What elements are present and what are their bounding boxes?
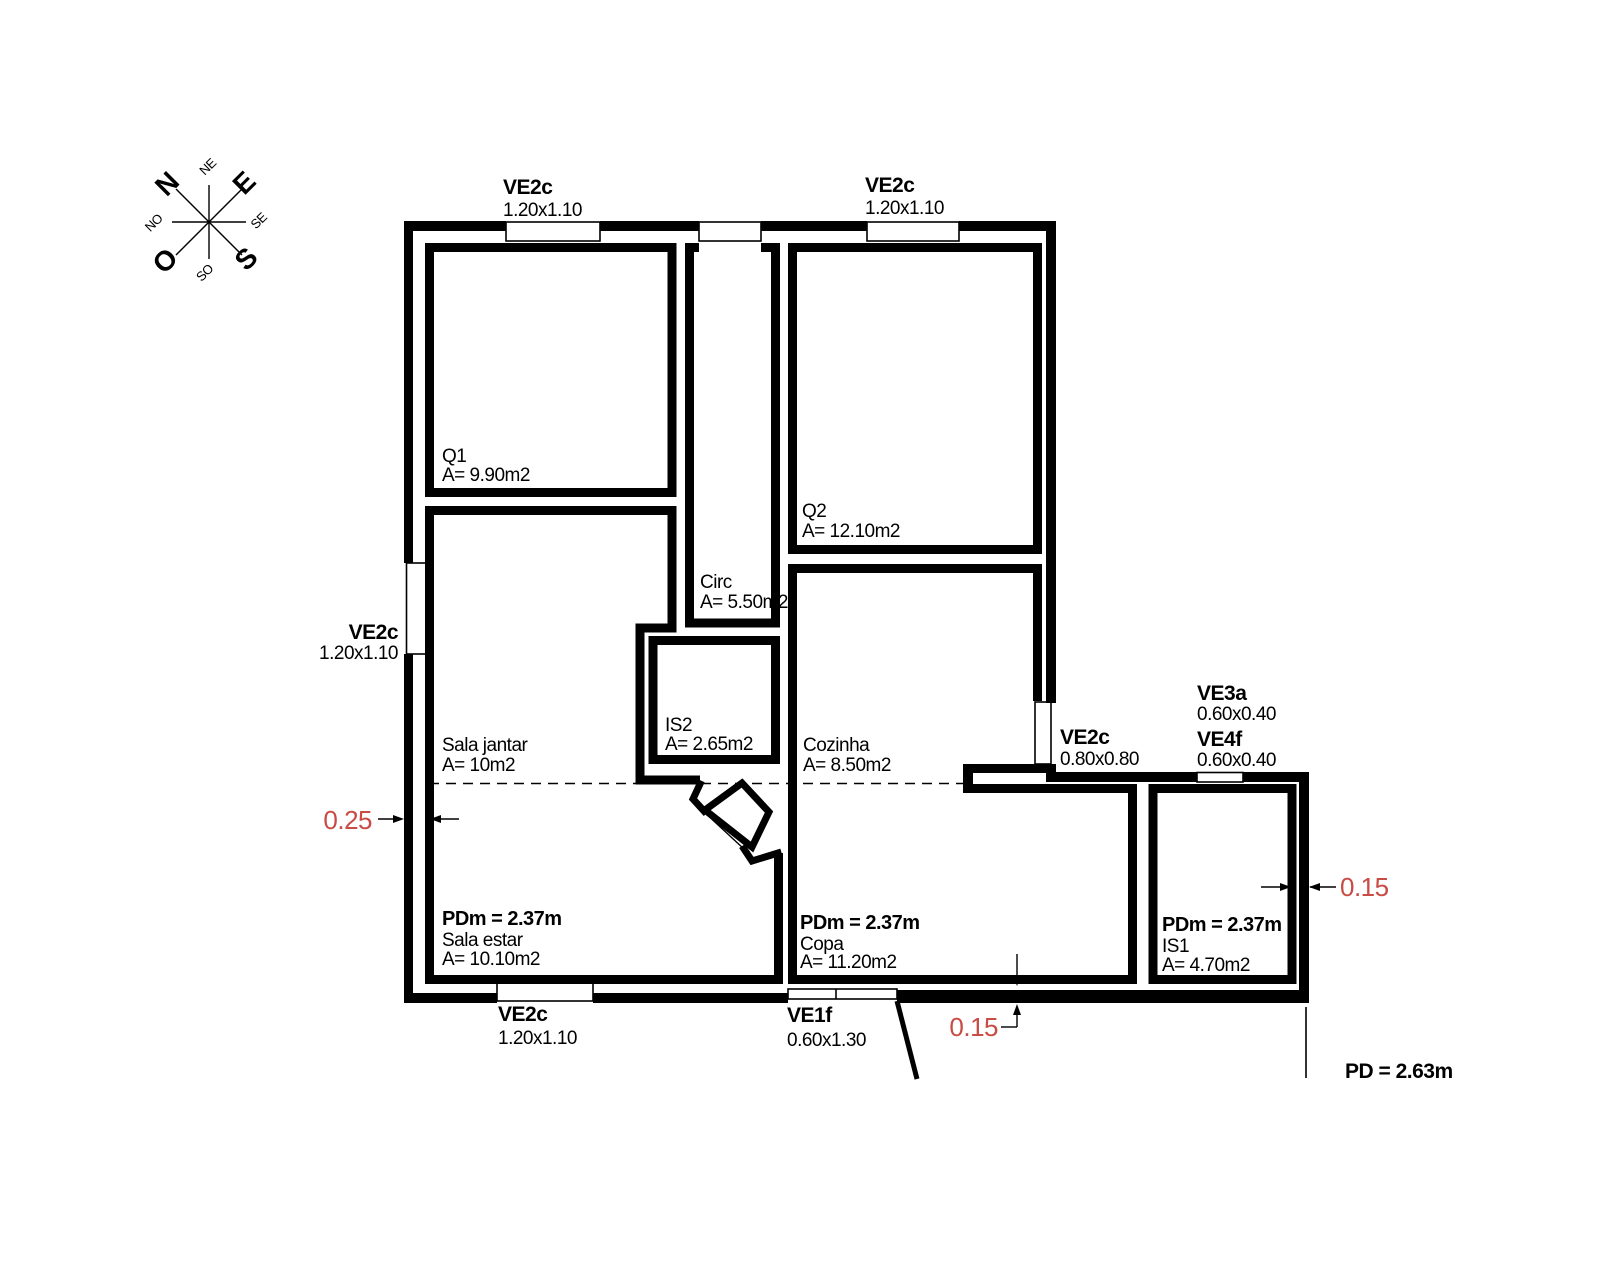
window-openings <box>407 222 1244 1001</box>
door-leaf <box>705 783 769 847</box>
window-bottom <box>497 982 593 1001</box>
label-left-window-code: VE2c <box>349 621 399 644</box>
compass-label-n: N <box>149 166 185 202</box>
label-sala-jantar-area: A= 10m2 <box>442 755 515 776</box>
label-bottom-window-code: VE2c <box>498 1003 548 1026</box>
dimension-left-arrow-outer <box>393 815 404 823</box>
floor-plan-drawing: N E S O NE SE SO NO <box>0 0 1600 1280</box>
wall-interior-band <box>968 764 1046 773</box>
label-q1-name: Q1 <box>442 446 466 467</box>
wall-left-lower <box>404 654 413 1003</box>
label-circ-name: Circ <box>700 572 732 593</box>
label-ve1f-size: 0.60x1.30 <box>787 1030 866 1051</box>
label-sala-estar-name: Sala estar <box>442 930 524 951</box>
label-q2-name: Q2 <box>802 501 826 522</box>
compass-label-e: E <box>227 166 262 201</box>
label-is1-area: A= 4.70m2 <box>1162 955 1250 976</box>
wall-extension-right <box>1299 772 1309 1003</box>
label-copa-ceiling: PDm = 2.37m <box>800 912 920 934</box>
compass-label-ne: NE <box>196 155 219 178</box>
label-copa-area: A= 11.20m2 <box>800 952 897 973</box>
rear-door-leaf <box>897 1001 917 1079</box>
label-cozinha-name: Cozinha <box>803 735 870 756</box>
label-top-window-1-code: VE2c <box>503 176 553 199</box>
floor-plan-page: N E S O NE SE SO NO <box>0 0 1600 1280</box>
label-bottom-window-size: 1.20x1.10 <box>498 1028 577 1049</box>
exterior-walls <box>404 221 1309 1003</box>
label-is2-name: IS2 <box>665 715 692 736</box>
compass-label-no: NO <box>142 211 166 235</box>
label-right-window-size: 0.80x0.80 <box>1060 749 1139 770</box>
label-top-window-2-code: VE2c <box>865 174 915 197</box>
room-outlines <box>430 248 1293 980</box>
interior-door <box>693 783 778 861</box>
label-right-window-code: VE2c <box>1060 726 1110 749</box>
window-left <box>407 563 428 654</box>
ceiling-height-note: PD = 2.63m <box>1345 1060 1453 1083</box>
label-sala-estar-ceiling: PDm = 2.37m <box>442 908 562 930</box>
compass-rose: N E S O NE SE SO NO <box>142 155 271 285</box>
label-top-window-1-size: 1.20x1.10 <box>503 200 582 221</box>
label-q2-area: A= 12.10m2 <box>802 521 900 542</box>
wall-top-segment-1 <box>404 221 506 231</box>
window-top-2 <box>867 222 959 241</box>
door-jamb-lower <box>744 849 778 861</box>
label-sala-estar-area: A= 10.10m2 <box>442 949 540 970</box>
label-q1-area: A= 9.90m2 <box>442 465 530 486</box>
room-outline-circ <box>690 248 776 624</box>
wall-left-upper <box>404 221 413 563</box>
label-left-window-size: 1.20x1.10 <box>319 643 398 664</box>
window-ve4f <box>1197 773 1243 783</box>
wall-bottom-segment-1 <box>404 993 497 1003</box>
dimension-bottom-value: 0.15 <box>949 1012 998 1042</box>
wall-top-segment-3 <box>761 221 867 231</box>
wall-bottom-segment-3 <box>897 990 1309 1003</box>
label-top-window-2-size: 1.20x1.10 <box>865 198 944 219</box>
label-is1-ceiling: PDm = 2.37m <box>1162 914 1282 936</box>
wall-bottom-segment-2 <box>593 993 788 1003</box>
room-outline-q2 <box>793 248 1038 550</box>
label-is1-name: IS1 <box>1162 936 1189 957</box>
label-sala-jantar-name: Sala jantar <box>442 735 529 756</box>
wall-right-main <box>1046 221 1056 703</box>
dimension-right-015: 0.15 <box>1261 872 1389 902</box>
compass-label-so: SO <box>193 261 216 284</box>
dimension-bottom-arrow-up <box>1013 1004 1021 1015</box>
label-ve1f-code: VE1f <box>787 1004 833 1027</box>
door-jamb-upper <box>693 784 704 811</box>
wall-top-segment-2 <box>600 221 699 231</box>
label-ve4f-code: VE4f <box>1197 728 1243 751</box>
window-top-1 <box>506 222 600 241</box>
window-ve1f <box>788 989 897 999</box>
label-is2-area: A= 2.65m2 <box>665 734 753 755</box>
window-top-corridor <box>699 222 761 241</box>
window-right <box>1035 702 1051 764</box>
label-cozinha-area: A= 8.50m2 <box>803 755 891 776</box>
label-ve4f-size: 0.60x0.40 <box>1197 750 1276 771</box>
dimension-left-value: 0.25 <box>323 805 372 835</box>
compass-label-o: O <box>146 242 183 279</box>
dimension-right-value: 0.15 <box>1340 872 1389 902</box>
label-ve3a-size: 0.60x0.40 <box>1197 704 1276 725</box>
wall-top-segment-4 <box>959 221 1056 231</box>
dimension-left-025: 0.25 <box>323 805 459 835</box>
label-ve3a-code: VE3a <box>1197 682 1247 705</box>
label-circ-area: A= 5.50m2 <box>700 592 788 613</box>
wall-extension-top-1 <box>1046 772 1197 782</box>
compass-label-se: SE <box>248 209 271 232</box>
